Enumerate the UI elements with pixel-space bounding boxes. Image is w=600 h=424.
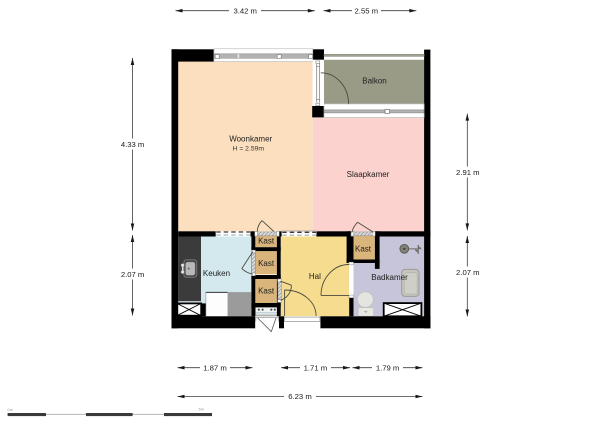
svg-text:2.07 m: 2.07 m bbox=[121, 270, 145, 279]
svg-text:Kast: Kast bbox=[355, 244, 372, 253]
svg-text:1.79 m: 1.79 m bbox=[376, 363, 400, 372]
svg-text:5m: 5m bbox=[199, 406, 205, 411]
svg-text:Keuken: Keuken bbox=[203, 269, 230, 278]
svg-text:3.42 m: 3.42 m bbox=[233, 6, 257, 15]
svg-text:Badkamer: Badkamer bbox=[371, 273, 408, 282]
svg-text:0m: 0m bbox=[7, 407, 13, 412]
svg-text:H = 2.59m: H = 2.59m bbox=[233, 146, 265, 153]
svg-text:1.87 m: 1.87 m bbox=[203, 363, 227, 372]
svg-text:Kast: Kast bbox=[258, 259, 275, 268]
svg-text:Hal: Hal bbox=[309, 272, 321, 281]
svg-text:2.91 m: 2.91 m bbox=[456, 168, 480, 177]
svg-text:Kast: Kast bbox=[258, 287, 275, 296]
svg-text:2.55 m: 2.55 m bbox=[355, 6, 379, 15]
svg-text:Balkon: Balkon bbox=[362, 77, 386, 86]
svg-text:4.33 m: 4.33 m bbox=[121, 140, 145, 149]
svg-text:6.23 m: 6.23 m bbox=[288, 392, 312, 401]
svg-text:Slaapkamer: Slaapkamer bbox=[347, 170, 390, 179]
svg-text:2.07 m: 2.07 m bbox=[456, 268, 480, 277]
svg-text:1.71 m: 1.71 m bbox=[304, 363, 328, 372]
svg-text:Woonkamer: Woonkamer bbox=[229, 135, 272, 144]
svg-text:Kast: Kast bbox=[258, 236, 275, 245]
